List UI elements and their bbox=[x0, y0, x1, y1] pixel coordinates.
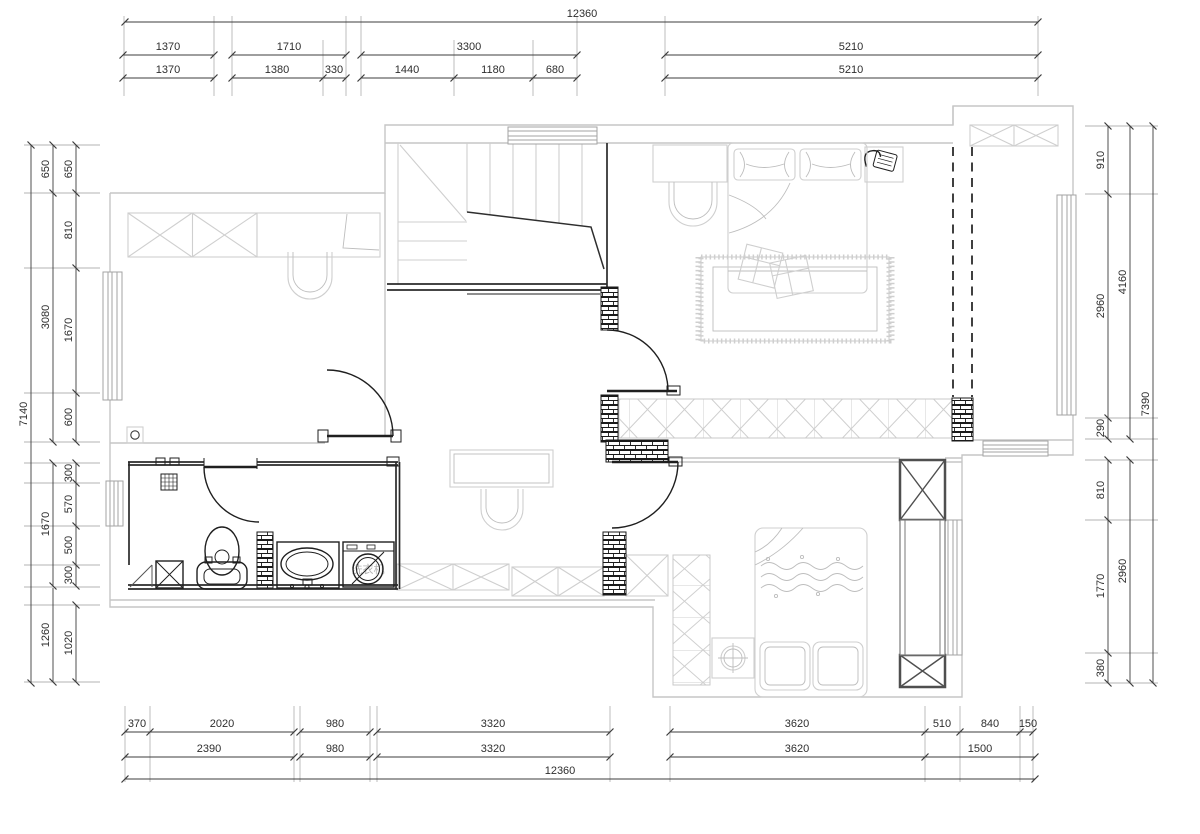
console-table bbox=[450, 450, 553, 487]
dim-label: 7390 bbox=[1140, 392, 1152, 416]
structural-columns bbox=[900, 460, 945, 687]
dim-label: 3620 bbox=[785, 743, 809, 755]
balcony-partition bbox=[953, 147, 972, 397]
dim-label: 810 bbox=[1095, 481, 1107, 499]
dim-label: 3300 bbox=[457, 41, 481, 53]
stair-break-line bbox=[467, 212, 604, 269]
living-room-furniture bbox=[127, 213, 380, 443]
dresser bbox=[257, 213, 380, 257]
dim-label: 150 bbox=[1019, 718, 1037, 730]
desk bbox=[653, 145, 727, 182]
dim-label: 3080 bbox=[40, 305, 52, 329]
dim-label: 1180 bbox=[481, 64, 505, 76]
dim-label: 650 bbox=[63, 160, 75, 178]
door-bedroom-top bbox=[607, 330, 680, 395]
dim-label: 1380 bbox=[265, 64, 289, 76]
dim-label: 380 bbox=[1095, 659, 1107, 677]
dim-label: 1020 bbox=[63, 631, 75, 655]
door-living-room bbox=[318, 370, 401, 442]
dim-label: 3320 bbox=[481, 718, 505, 730]
dimensions-left: 7140 650 3080 1670 1260 650 810 1670 600… bbox=[18, 145, 76, 683]
pillow bbox=[760, 642, 810, 690]
rug bbox=[701, 257, 889, 341]
dim-label: 1500 bbox=[968, 743, 992, 755]
dim-label: 1370 bbox=[156, 41, 180, 53]
pillow bbox=[800, 149, 861, 180]
floor-plan-canvas: 洗衣机 bbox=[0, 0, 1200, 834]
staircase bbox=[387, 143, 607, 294]
pillow bbox=[813, 642, 863, 690]
dim-label: 1770 bbox=[1095, 574, 1107, 598]
cushion bbox=[738, 244, 783, 288]
chair bbox=[481, 489, 523, 530]
dim-label: 650 bbox=[40, 160, 52, 178]
floor-drain bbox=[127, 427, 143, 443]
dim-label: 5210 bbox=[839, 64, 863, 76]
cushion bbox=[770, 255, 814, 298]
dim-label: 1370 bbox=[156, 64, 180, 76]
dim-label: 370 bbox=[128, 718, 146, 730]
dim-label: 500 bbox=[63, 536, 75, 554]
bedroom-top-furniture bbox=[653, 143, 903, 341]
dim-label: 1670 bbox=[40, 512, 52, 536]
dimensions-bottom: 370 2020 980 3320 3620 510 840 150 2390 … bbox=[125, 718, 1037, 779]
dim-label: 570 bbox=[63, 495, 75, 513]
door-bathroom bbox=[204, 467, 259, 522]
dim-label: 980 bbox=[326, 718, 344, 730]
dim-label: 330 bbox=[325, 64, 343, 76]
dim-label: 12360 bbox=[545, 765, 576, 777]
dim-label: 12360 bbox=[567, 8, 598, 20]
dim-label: 840 bbox=[981, 718, 999, 730]
floor-plan-drawing: 洗衣机 bbox=[0, 0, 1200, 834]
nightstand bbox=[865, 147, 903, 182]
dimensions-top: 12360 1370 1710 3300 5210 1370 1380 330 … bbox=[123, 8, 1038, 78]
bedroom-wardrobe-column bbox=[673, 555, 710, 685]
cabinet-tall bbox=[900, 520, 945, 655]
dim-label: 300 bbox=[63, 566, 75, 584]
dim-label: 510 bbox=[933, 718, 951, 730]
dim-label: 2020 bbox=[210, 718, 234, 730]
dim-label: 5210 bbox=[839, 41, 863, 53]
dim-label: 1440 bbox=[395, 64, 419, 76]
dim-label: 1710 bbox=[277, 41, 301, 53]
dim-label: 600 bbox=[63, 408, 75, 426]
dim-label: 1670 bbox=[63, 318, 75, 342]
hall-furniture bbox=[450, 450, 553, 530]
dim-label: 1260 bbox=[40, 623, 52, 647]
washing-machine: 洗衣机 bbox=[343, 542, 394, 587]
dim-label: 3620 bbox=[785, 718, 809, 730]
washbasin bbox=[277, 542, 339, 589]
dim-label: 3320 bbox=[481, 743, 505, 755]
brick-piers bbox=[257, 287, 973, 595]
dim-label: 2960 bbox=[1095, 294, 1107, 318]
hall-wardrobe-row bbox=[619, 399, 952, 438]
dim-label: 4160 bbox=[1117, 270, 1129, 294]
dim-label: 810 bbox=[63, 221, 75, 239]
dim-label: 7140 bbox=[18, 402, 30, 426]
dim-label: 290 bbox=[1095, 419, 1107, 437]
dim-label: 680 bbox=[546, 64, 564, 76]
bedroom-bottom-furniture bbox=[712, 528, 867, 697]
dim-label: 2960 bbox=[1117, 559, 1129, 583]
dim-label: 980 bbox=[326, 743, 344, 755]
dim-label: 910 bbox=[1095, 151, 1107, 169]
dimensions-right: 910 2960 290 810 1770 380 4160 2960 7390 bbox=[1095, 126, 1153, 683]
dim-label: 300 bbox=[63, 464, 75, 482]
dim-label: 2390 bbox=[197, 743, 221, 755]
phone-icon bbox=[863, 147, 898, 173]
pillow bbox=[734, 149, 795, 180]
toilet bbox=[197, 527, 247, 589]
door-bedroom-bottom bbox=[612, 457, 682, 528]
bed bbox=[755, 528, 867, 697]
